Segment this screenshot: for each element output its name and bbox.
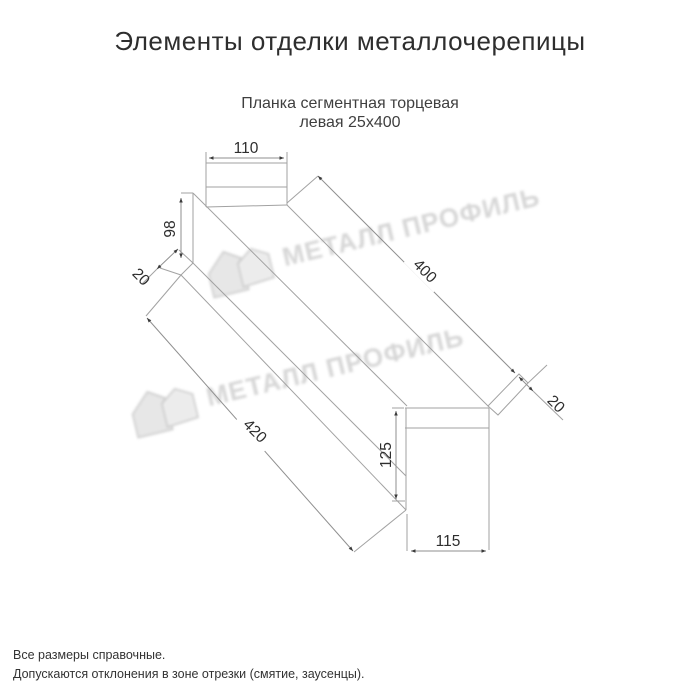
dim-right-hem: 20 xyxy=(544,392,568,416)
footer-notes: Все размеры справочные. Допускаются откл… xyxy=(13,646,365,684)
part-outline xyxy=(181,152,528,550)
dim-right-end-height: 125 xyxy=(378,442,395,468)
dim-bottom-flange-width: 115 xyxy=(436,533,461,550)
footer-note-line2: Допускаются отклонения в зоне отрезки (с… xyxy=(13,665,365,684)
extension-lines xyxy=(142,176,563,552)
footer-note-line1: Все размеры справочные. xyxy=(13,646,365,665)
dim-left-end-height: 98 xyxy=(162,220,179,237)
page: { "title": "Элементы отделки металлочере… xyxy=(0,0,700,700)
dimension-labels: 110 98 20 400 420 20 125 115 xyxy=(129,140,568,550)
dim-top-flange-width: 110 xyxy=(234,140,259,157)
dim-left-hem: 20 xyxy=(129,265,153,289)
technical-drawing: 110 98 20 400 420 20 125 115 xyxy=(0,0,700,700)
dimension-lines xyxy=(147,158,533,551)
